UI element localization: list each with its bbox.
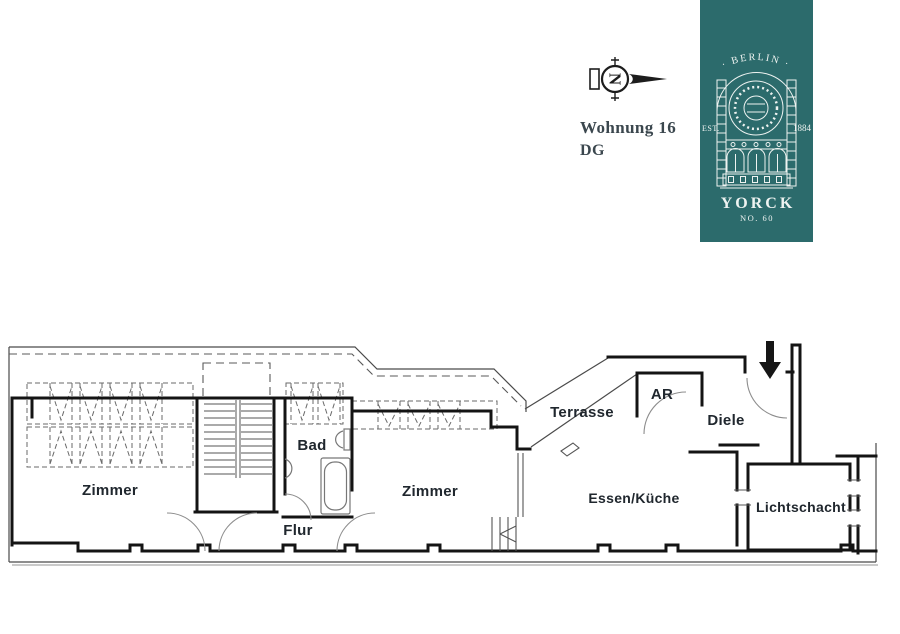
floor-plan-page: · BERLIN · EST. 1884 YORCK NO. 60 N <box>0 0 900 634</box>
room-label-lichtschacht: Lichtschacht <box>756 499 846 515</box>
room-label-zimmer-2: Zimmer <box>402 483 458 500</box>
floor-plan-drawing: · BERLIN · EST. 1884 YORCK NO. 60 N <box>0 0 900 634</box>
room-label-diele: Diele <box>707 412 744 429</box>
room-label-flur: Flur <box>283 522 313 539</box>
north-arrow-icon: N <box>590 57 667 101</box>
sink-icon <box>336 431 343 448</box>
room-label-terrasse: Terrasse <box>550 404 614 421</box>
compass-north-letter: N <box>606 73 625 86</box>
bathtub-icon <box>321 458 350 514</box>
room-label-essen-kueche: Essen/Küche <box>588 490 679 506</box>
badge-house-name: YORCK <box>721 195 796 212</box>
entrance-arrow-icon <box>759 341 781 379</box>
staircase <box>204 400 272 478</box>
room-label-zimmer-1: Zimmer <box>82 482 138 499</box>
title-block: Wohnung 16 DG <box>580 118 676 160</box>
room-label-ar: AR <box>651 386 673 403</box>
badge-est-label: EST. <box>702 124 720 133</box>
terrace-door-symbol <box>561 443 579 456</box>
room-label-bad: Bad <box>297 437 326 454</box>
apartment-title: Wohnung 16 <box>580 118 676 138</box>
badge-house-number: NO. 60 <box>740 213 774 223</box>
brand-badge: · BERLIN · EST. 1884 YORCK NO. 60 <box>700 0 813 242</box>
floor-title: DG <box>580 142 676 160</box>
badge-year: 1884 <box>793 123 812 133</box>
